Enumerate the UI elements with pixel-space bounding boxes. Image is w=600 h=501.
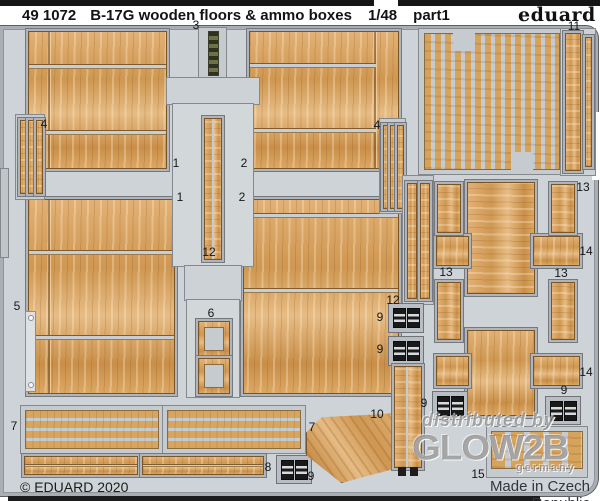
eduard-logo: eduard [518,4,594,26]
plank-groove [250,128,376,133]
clasp-group [388,336,424,366]
clasp [281,460,294,480]
plank-divider [374,32,376,168]
floor-panel-top-left [28,31,167,169]
plank-groove [29,130,166,135]
strip-groove [143,464,263,467]
cross-floor-arm-left-upper [436,236,469,266]
slat-group [25,410,159,449]
clasp [393,341,406,361]
slat-group-carrier-7 [162,405,306,454]
cross-floor-arm-right-upper [533,236,580,266]
strip-foot [410,467,418,476]
strip-maze [424,33,560,170]
ammo-belt-part [208,31,219,76]
product-sheet-image: 49 1072 B-17G wooden floors & ammo boxes… [0,0,600,501]
side-box-13 [551,184,575,233]
clasp [295,460,308,480]
narrow-floor-strips-1-2 [204,118,222,260]
catalog-number: 49 1072 [22,7,76,24]
strip-split [406,367,408,467]
plank-groove [29,250,174,255]
thin-strip [390,125,397,209]
ammo-belt-carrier [198,27,227,79]
clasp-group [545,396,581,425]
strip-foot [398,467,406,476]
plank-groove [29,64,166,69]
clasp [564,401,577,421]
cross-floor-arm-right-lower [533,356,580,386]
long-strip-8 [142,456,264,475]
plank-divider [48,32,50,168]
clasp-group [432,391,468,420]
clasp-group [388,303,424,333]
maze-gray-notch [511,152,533,170]
clasp [550,401,563,421]
strip-maze-carrier-11 [418,28,566,175]
strip-hole [28,382,34,388]
fret-bridge-lower [184,265,242,301]
clasp [437,396,450,416]
metal-strip-part-5 [25,311,36,392]
floor-panel-bottom-left [28,199,175,394]
center-column-carrier [172,103,254,267]
ammo-box-frame [198,321,230,357]
cross-floor-center-upper [467,182,535,294]
cross-floor-arm-left-lower [436,356,469,386]
clasp [451,396,464,416]
maze-gray-notch [453,33,475,51]
chute-vertical-strip [394,366,422,468]
clasp [407,308,420,328]
ammo-box-frame [198,358,230,394]
thin-strip [28,120,35,194]
clasp [407,341,420,361]
fret-bridge-upper [166,77,260,105]
slat-group-carrier-7 [20,405,164,454]
edge-strips-carrier-11 [560,28,596,176]
strip-hole [28,315,34,321]
frame-opening [204,327,224,351]
small-box-row [491,431,583,469]
sheet-title: B-17G wooden floors & ammo boxes [90,7,352,24]
part-label: part1 [413,7,450,24]
edge-strip-narrow [585,37,592,167]
copyright-text: © EDUARD 2020 [20,479,128,495]
fret-edge-strip [0,168,9,258]
plank-groove [244,288,398,293]
thin-strip [36,120,43,194]
header: 49 1072 B-17G wooden floors & ammo boxes… [22,6,450,25]
thin-strips-carrier-left [15,114,45,200]
thin-strip [20,120,27,194]
plank-groove [250,63,376,68]
slat-group [167,410,301,449]
frame-opening [204,364,224,388]
side-box-13 [551,282,575,340]
cross-floor-center-lower [467,330,535,416]
floor-panel-top-right [249,31,399,169]
small-boxes-carrier-15 [486,426,588,478]
edge-strip-wide [565,33,581,171]
made-in-text: Made in Czech Republic [436,478,590,501]
clasp-group [276,455,312,484]
side-box-13 [437,282,461,340]
plank-groove [29,335,174,340]
side-box-13 [437,184,461,233]
long-strips-carrier-12 [402,175,434,305]
clasp [393,308,406,328]
strip-split [212,119,214,259]
long-strip [420,183,430,299]
scale-label: 1/48 [368,7,397,24]
thin-strip [383,125,390,209]
plank-groove [244,213,398,218]
plank-divider [48,200,50,393]
strip-groove [25,464,137,467]
long-strip [407,183,417,299]
long-strip-8 [24,456,138,475]
ammo-box-frames-carrier [186,299,240,398]
floor-panel-bottom-right [243,199,399,394]
